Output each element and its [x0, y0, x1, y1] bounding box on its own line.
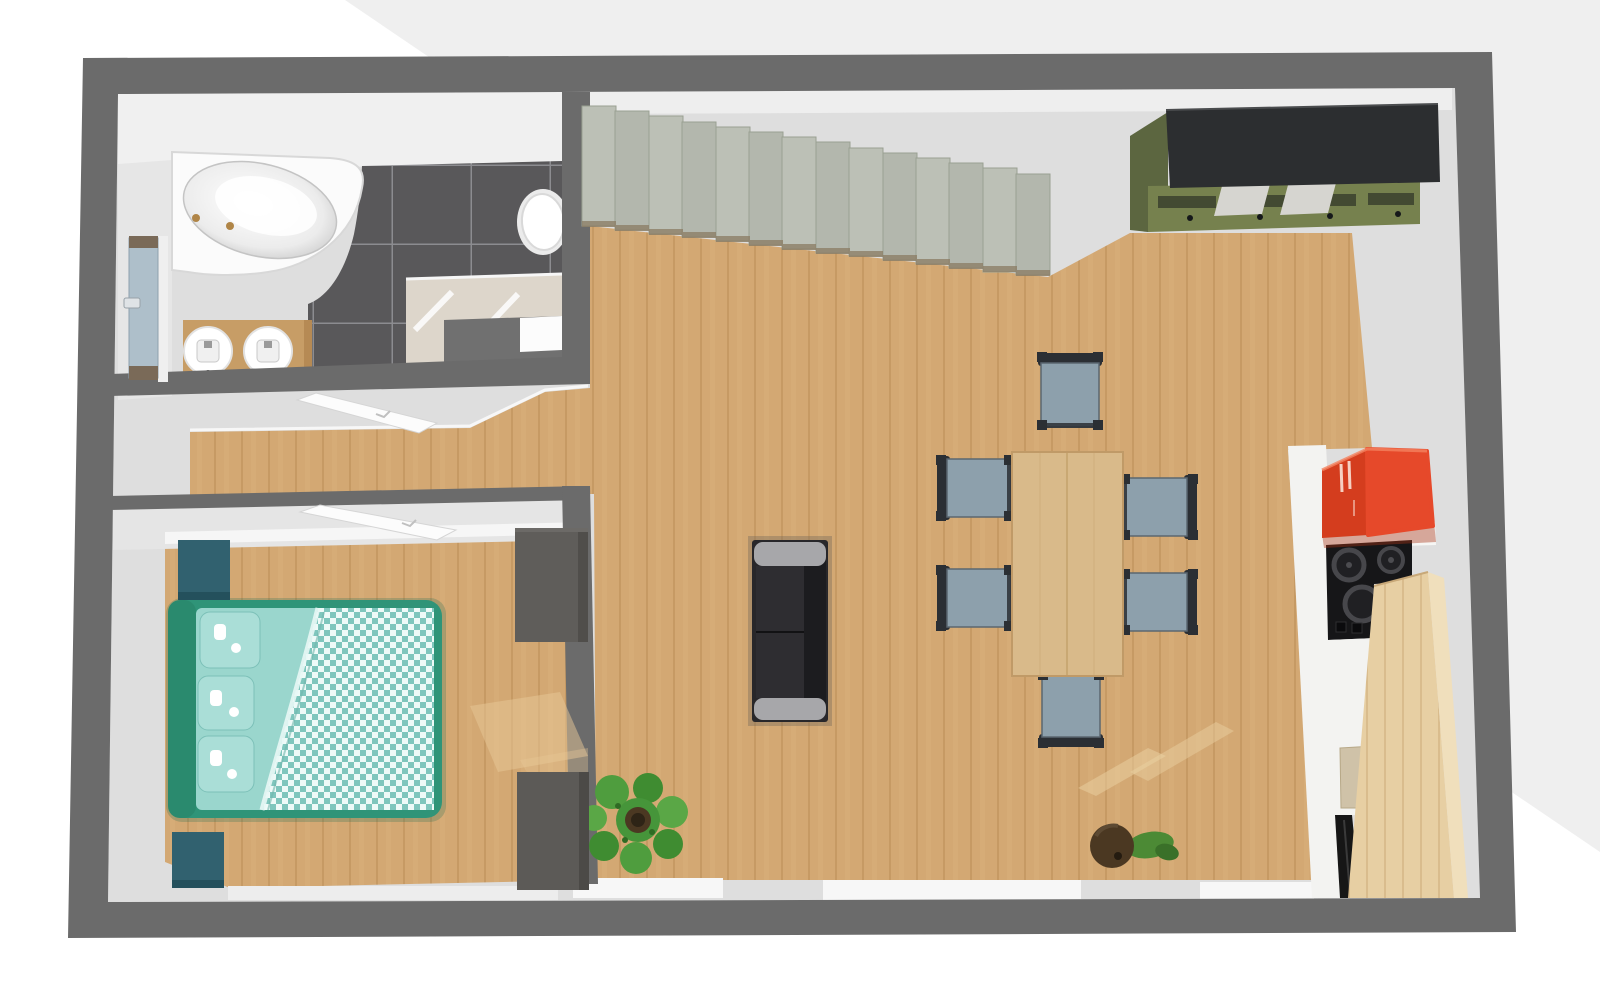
floor-plan-canvas [0, 0, 1600, 1007]
red-wall-cabinet[interactable] [1322, 449, 1436, 548]
floor-plan-rendering [0, 0, 1600, 1007]
stair-step [749, 132, 783, 245]
nightstand-bottom[interactable] [172, 832, 224, 888]
sofa-armrest [754, 542, 826, 566]
red-cabinet-handle [1341, 464, 1342, 492]
dresser-edge [579, 772, 589, 890]
pillows [198, 612, 260, 792]
wardrobe-knob [1395, 211, 1401, 217]
wardrobe-cabinet[interactable] [1130, 104, 1440, 232]
dining-chair[interactable] [1037, 352, 1103, 430]
wardrobe-top-panel [1166, 104, 1440, 188]
red-cabinet-top [1367, 449, 1433, 535]
dining-chair[interactable] [936, 455, 1014, 521]
stair-step [849, 148, 883, 256]
dining-chair[interactable] [1120, 474, 1198, 540]
sofa-seat-cushion [756, 566, 804, 632]
cooktop-knob [1352, 623, 1362, 633]
door-handle [124, 298, 140, 308]
stair-step [649, 116, 683, 234]
bathtub-faucet [226, 222, 234, 230]
sofa-backrest [804, 548, 826, 714]
nightstand-top-surface [178, 540, 230, 598]
plant-pot-center [631, 813, 645, 827]
entry-door[interactable] [124, 236, 168, 382]
stair-step [949, 163, 983, 268]
sink-left [184, 327, 232, 376]
dining-table[interactable] [1012, 452, 1123, 676]
nightstand-top-surface [172, 832, 224, 888]
bed-headboard [168, 600, 196, 818]
dining-chair[interactable] [936, 565, 1014, 631]
toilet[interactable] [517, 189, 569, 255]
pot-soil [1114, 852, 1122, 860]
dresser-surface [517, 772, 589, 890]
wardrobe-shelf-slot [1368, 193, 1414, 205]
nightstand-edge [178, 592, 230, 600]
double-bed[interactable] [166, 598, 446, 822]
dresser-edge [578, 528, 588, 642]
stair-step [716, 127, 750, 241]
sofa[interactable] [748, 536, 832, 726]
wardrobe-knob [1187, 215, 1193, 221]
door-cap-top [129, 236, 158, 248]
door-jamb [158, 236, 168, 382]
cooktop-knob [1336, 622, 1346, 632]
wardrobe-open-section [1214, 184, 1270, 216]
bedroom-bottom-wall-face [228, 886, 558, 900]
nightstand-top[interactable] [178, 540, 230, 600]
wardrobe-knob [1327, 213, 1333, 219]
red-cabinet-handle [1349, 461, 1350, 489]
nightstand-edge [172, 880, 224, 888]
wardrobe-open-section [1280, 183, 1336, 215]
plant-pot [1090, 824, 1134, 868]
wardrobe-knob [1257, 214, 1263, 220]
stair-step [816, 142, 850, 253]
stair-step [682, 122, 716, 237]
wardrobe-shelf-slot [1158, 196, 1216, 208]
window-sill [823, 880, 1081, 900]
bathtub-faucet [192, 214, 200, 222]
bathroom [172, 146, 569, 382]
stair-step [615, 111, 649, 230]
dresser-top[interactable] [515, 528, 588, 642]
sofa-armrest [754, 698, 826, 720]
stair-step [1016, 174, 1050, 275]
dining-chair[interactable] [1120, 569, 1198, 635]
stair-step [582, 106, 616, 226]
door-cap-bottom [129, 366, 158, 380]
dresser-highlight [515, 528, 588, 532]
sofa-seat-cushion [756, 632, 804, 698]
shower-tray-corner [520, 316, 562, 352]
dresser-bottom[interactable] [517, 772, 589, 890]
stair-step [916, 158, 950, 264]
stair-step [983, 168, 1017, 272]
dresser-surface [515, 528, 588, 642]
dining-chair[interactable] [1038, 670, 1104, 748]
burner-center [1388, 557, 1394, 563]
window-sill [1200, 882, 1314, 900]
stair-step [782, 137, 816, 249]
burner-center [1346, 562, 1352, 568]
stair-step [883, 153, 917, 260]
